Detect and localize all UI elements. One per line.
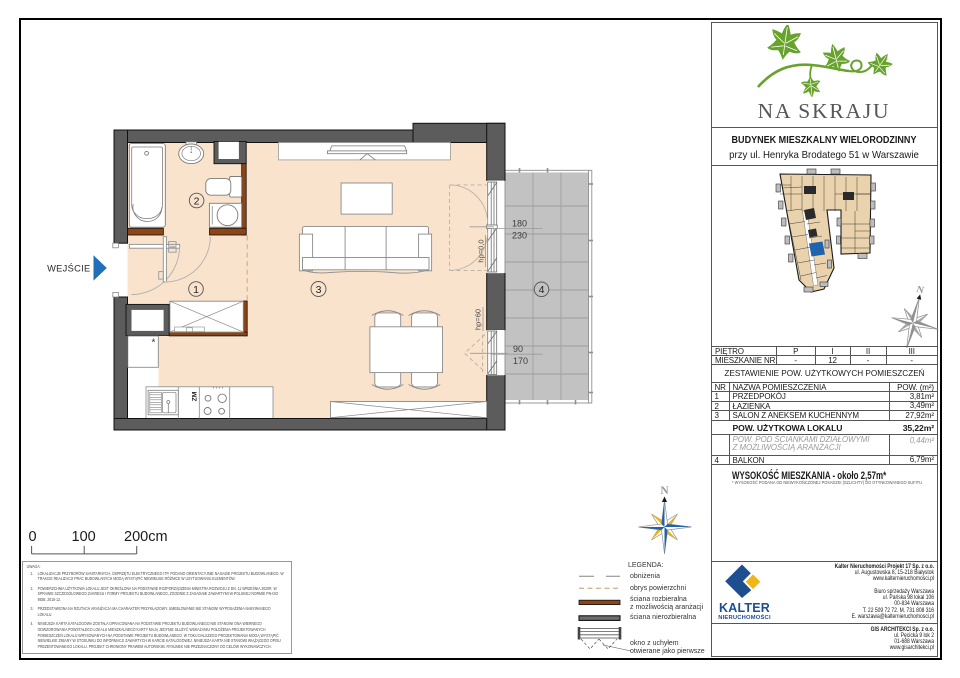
svg-text:N: N	[660, 485, 669, 497]
svg-text:hp=60: hp=60	[474, 309, 483, 330]
svg-text:200cm: 200cm	[124, 529, 168, 545]
svg-text:4: 4	[539, 284, 545, 296]
svg-text:0: 0	[29, 529, 37, 545]
svg-text:100: 100	[72, 529, 96, 545]
svg-text:90: 90	[513, 344, 523, 354]
svg-text:*: *	[152, 338, 156, 349]
svg-text:180: 180	[512, 219, 527, 229]
svg-text:ZM: ZM	[192, 391, 199, 401]
svg-text:2: 2	[194, 195, 200, 207]
svg-text:3: 3	[316, 284, 322, 296]
svg-text:230: 230	[512, 231, 527, 241]
svg-text:WEJŚCIE: WEJŚCIE	[47, 263, 90, 274]
svg-text:170: 170	[513, 356, 528, 366]
svg-text:N: N	[915, 286, 925, 297]
svg-text:hp=0,0: hp=0,0	[477, 239, 486, 262]
svg-text:1: 1	[193, 284, 199, 296]
